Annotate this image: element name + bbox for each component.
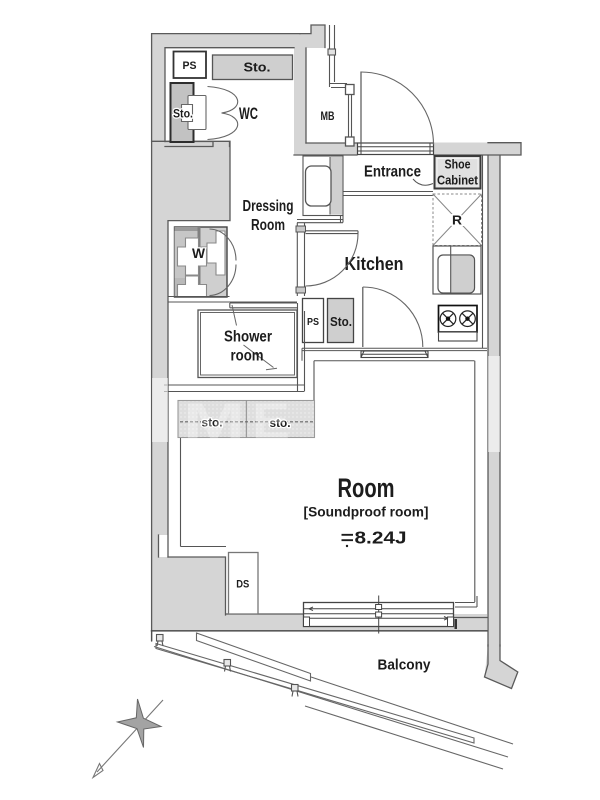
svg-text:room: room: [231, 348, 264, 365]
svg-text:Shoe: Shoe: [445, 157, 471, 172]
svg-text:Cabinet: Cabinet: [437, 173, 479, 188]
svg-text:PS: PS: [307, 317, 319, 328]
svg-text:8.24J: 8.24J: [355, 528, 407, 548]
svg-text:Sto.: Sto.: [330, 314, 352, 329]
svg-text:Entrance: Entrance: [364, 164, 421, 181]
svg-text:Balcony: Balcony: [378, 658, 431, 674]
svg-text:Room: Room: [338, 473, 395, 503]
svg-text:DS: DS: [236, 579, 249, 591]
svg-text:W: W: [192, 245, 206, 261]
svg-text:Sto.: Sto.: [244, 60, 271, 75]
svg-text:R: R: [452, 213, 463, 228]
svg-text:Shower: Shower: [224, 329, 272, 346]
svg-text:MB: MB: [321, 111, 335, 123]
svg-text:E: E: [252, 393, 290, 449]
svg-text:Room: Room: [251, 217, 285, 234]
svg-text:Kitchen: Kitchen: [345, 254, 404, 274]
svg-text:[Soundproof room]: [Soundproof room]: [304, 504, 429, 520]
svg-text:Dressing: Dressing: [243, 198, 294, 215]
svg-text:WC: WC: [239, 104, 258, 123]
svg-text:M: M: [183, 393, 245, 449]
svg-text:PS: PS: [183, 60, 197, 72]
svg-text:Sto.: Sto.: [173, 107, 193, 121]
